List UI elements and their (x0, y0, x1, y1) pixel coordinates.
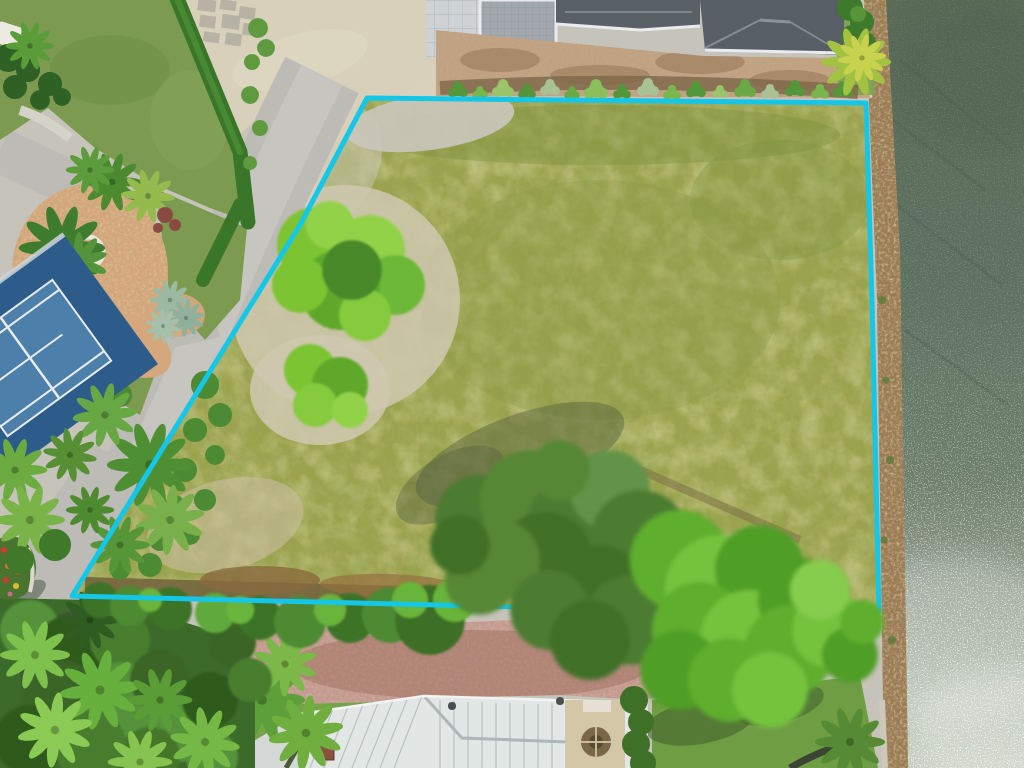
aerial-photo (0, 0, 1024, 768)
stair-structure (565, 700, 625, 768)
roof-left-wing (556, 0, 700, 30)
roof-right-wing (700, 0, 845, 55)
top-house (426, 0, 895, 105)
aerial-photo-canvas (0, 0, 1024, 768)
